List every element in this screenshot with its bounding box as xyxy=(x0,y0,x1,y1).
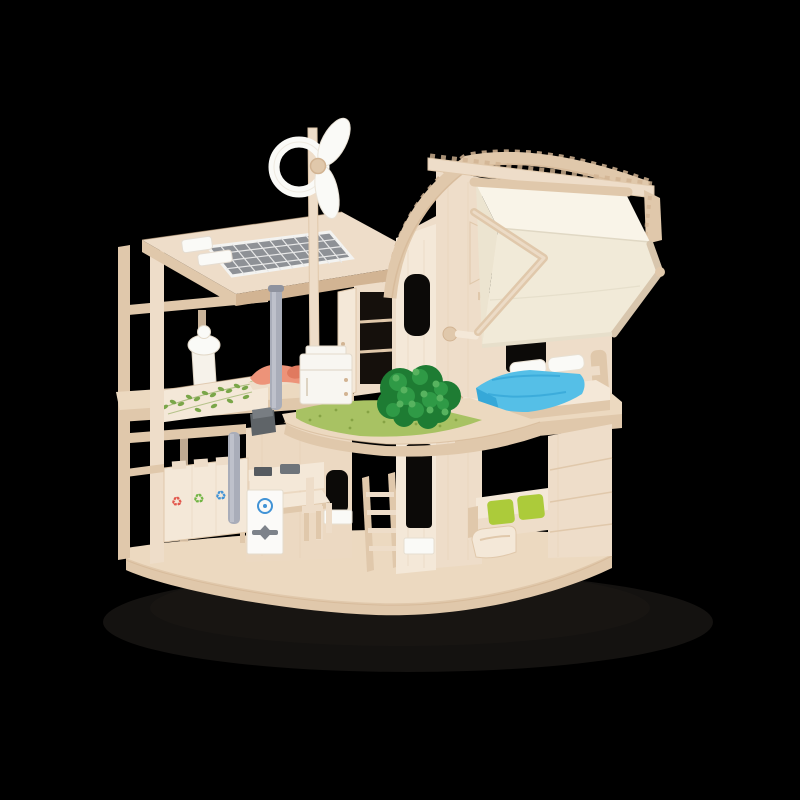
window-planter xyxy=(404,538,434,554)
compost-unit: White compost / water unit with blue ico… xyxy=(247,490,283,554)
paneled-wall: Paneled lower right wall xyxy=(548,424,612,558)
recycle-icon-blue: ♻ xyxy=(214,489,227,505)
turbine-hub xyxy=(311,159,326,174)
recycle-icon-red: ♻ xyxy=(170,495,183,511)
recycle-icon-green: ♻ xyxy=(192,492,205,508)
dollhouse-illustration: Wooden green dollhouse with furniture So… xyxy=(0,0,800,800)
product-photo-stage: A two-storey natural-wood toy dollhouse … xyxy=(0,0,800,800)
armchair: Wooden armchair xyxy=(472,526,516,558)
canvas-awning: Folded ivory canvas awning xyxy=(474,182,665,346)
lime-cushion xyxy=(517,494,545,521)
battery-cabinet: White battery / fridge cabinet xyxy=(300,346,352,404)
lime-cushion xyxy=(487,499,515,526)
